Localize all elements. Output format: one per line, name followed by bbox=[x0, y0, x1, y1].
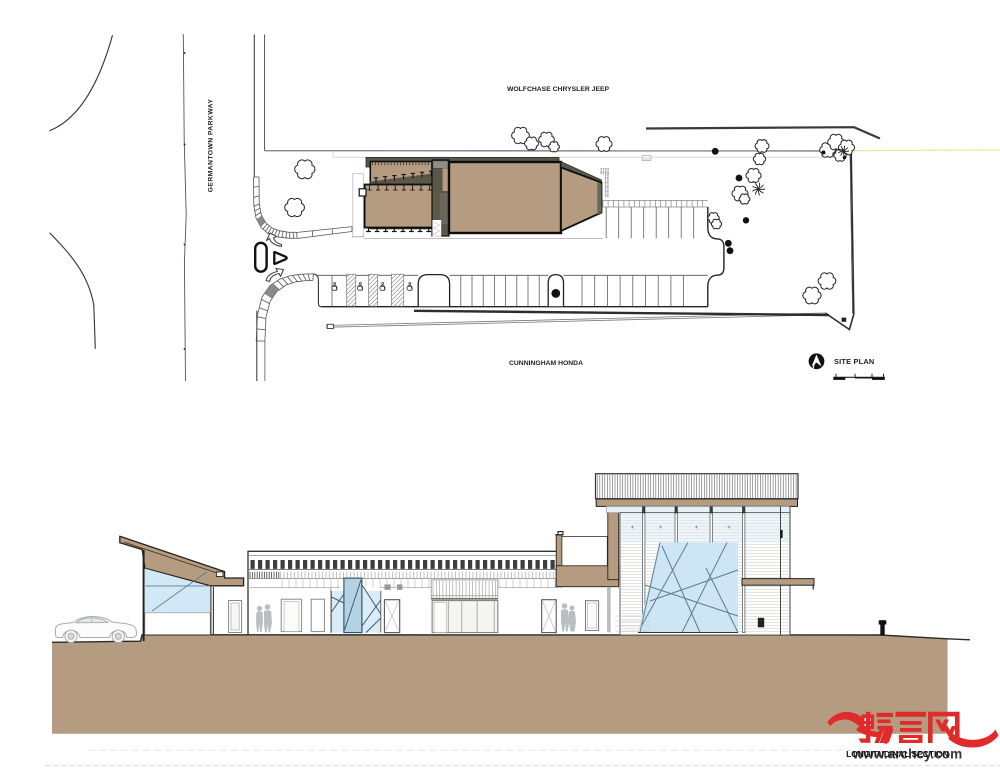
svg-text:SITE PLAN: SITE PLAN bbox=[834, 357, 874, 366]
svg-text:GERMANTOWN PARKWAY: GERMANTOWN PARKWAY bbox=[208, 99, 215, 193]
svg-text:SGN: SGN bbox=[643, 156, 650, 160]
svg-text:WOLFCHASE CHRYSLER JEEP: WOLFCHASE CHRYSLER JEEP bbox=[507, 86, 610, 93]
svg-text:www.archcy.com: www.archcy.com bbox=[852, 747, 963, 762]
svg-text:CUNNINGHAM HONDA: CUNNINGHAM HONDA bbox=[509, 360, 583, 367]
